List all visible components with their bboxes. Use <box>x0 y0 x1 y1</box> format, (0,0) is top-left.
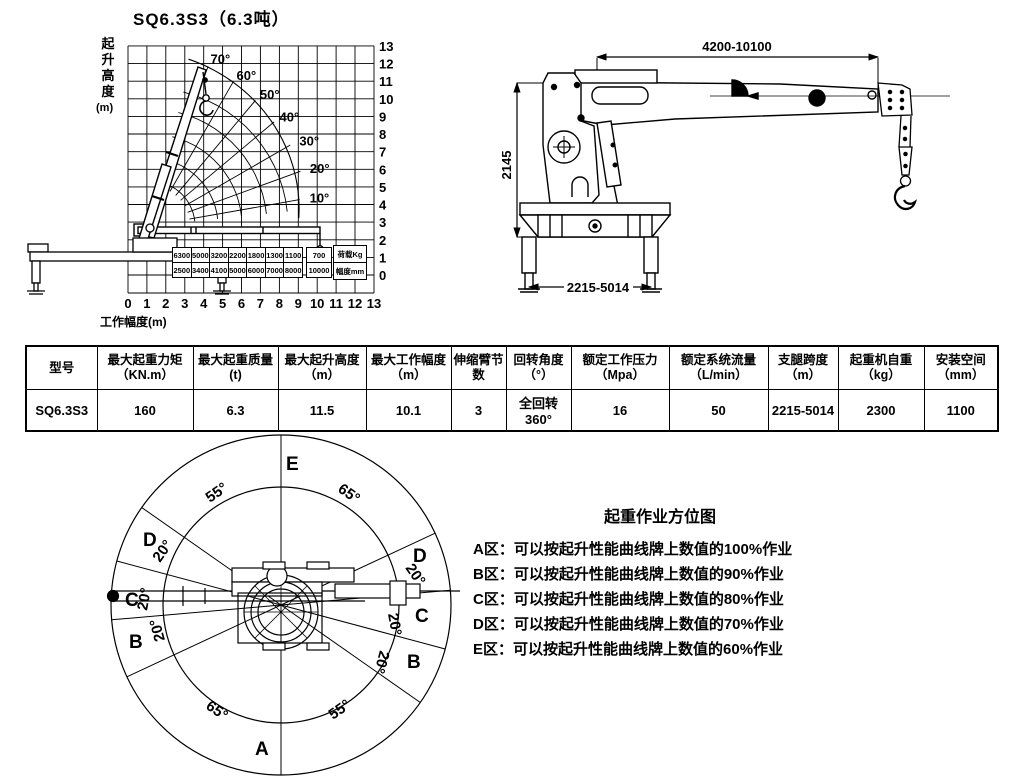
load-height-chart: 01234567891011121301234567891011121310°2… <box>15 0 415 340</box>
x-axis-label: 工作幅度(m) <box>100 314 167 329</box>
radius-cell: 6000 <box>247 263 266 278</box>
load-row-label: 荷载Kg <box>334 246 367 263</box>
dim-span-text: 2215-5014 <box>567 280 630 295</box>
radius-cell: 2500 <box>173 263 192 278</box>
sector-angle-20-right-b: 20° <box>370 649 392 675</box>
raised-boom-drawing <box>136 67 213 248</box>
base-and-outriggers <box>518 203 670 292</box>
dim-outrigger-span: 2215-5014 <box>529 280 651 295</box>
boom-angle-label: 30° <box>299 134 319 149</box>
load-cell: 700 <box>307 248 332 263</box>
spec-header-cell: 支腿跨度（m） <box>768 346 838 390</box>
spec-header-row: 型号 最大起重力矩（KN.m） 最大起重质量(t) 最大起升高度（m） 最大工作… <box>26 346 998 390</box>
capacity-table-labels: 荷载Kg 幅度mm <box>333 245 367 280</box>
sector-angle-20-left-b: 20° <box>147 617 169 643</box>
x-tick-label: 1 <box>143 296 150 311</box>
radius-cell: 4100 <box>210 263 229 278</box>
load-cell: 1300 <box>265 248 284 263</box>
y-tick-label: 2 <box>379 233 386 248</box>
crane-datasheet-page: SQ6.3S3（6.3吨） 起升高度 (m) 01234567891011121… <box>0 0 1018 784</box>
spec-table: 型号 最大起重力矩（KN.m） 最大起重质量(t) 最大起升高度（m） 最大工作… <box>25 345 999 432</box>
x-tick-label: 12 <box>348 296 362 311</box>
spec-header-cell: 起重机自重（kg） <box>838 346 924 390</box>
load-cell: 1100 <box>284 248 303 263</box>
crane-side-view: 4200-10100 2145 <box>480 25 1018 330</box>
spec-header-cell: 最大起重质量(t) <box>193 346 278 390</box>
zone-legend-item: B区：可以按起升性能曲线牌上数值的90%作业 <box>445 562 875 587</box>
x-tick-label: 9 <box>295 296 302 311</box>
sector-angle-bottom-left: 65° <box>203 697 231 724</box>
radius-cell: 3400 <box>191 263 210 278</box>
spec-header-cell: 额定系统流量（L/min） <box>669 346 768 390</box>
spec-header-cell: 最大起重力矩（KN.m） <box>97 346 193 390</box>
x-tick-label: 10 <box>310 296 324 311</box>
boom-angle-label: 60° <box>237 68 257 83</box>
spec-value-cell: 50 <box>669 390 768 432</box>
load-cell: 5000 <box>191 248 210 263</box>
y-tick-label: 0 <box>379 268 386 283</box>
spec-value-cell: 3 <box>451 390 506 432</box>
zone-legend-item: A区：可以按起升性能曲线牌上数值的100%作业 <box>445 537 875 562</box>
sector-angle-20-left-c: 20° <box>134 586 155 611</box>
radius-cell: 7000 <box>265 263 284 278</box>
zone-legend-item: C区：可以按起升性能曲线牌上数值的80%作业 <box>445 587 875 612</box>
zone-legend-title: 起重作业方位图 <box>445 505 875 531</box>
spec-value-cell: 2300 <box>838 390 924 432</box>
boom-angle-label: 10° <box>310 190 330 205</box>
dim-height-text: 2145 <box>499 151 514 180</box>
spec-value-row: SQ6.3S3 160 6.3 11.5 10.1 3 全回转360° 16 5… <box>26 390 998 432</box>
spec-value-cell: 11.5 <box>278 390 366 432</box>
y-tick-label: 9 <box>379 109 386 124</box>
boom-angle-label: 40° <box>280 109 300 124</box>
zone-legend-item: E区：可以按起升性能曲线牌上数值的60%作业 <box>445 637 875 662</box>
y-tick-label: 10 <box>379 92 393 107</box>
zone-legend-item: D区：可以按起升性能曲线牌上数值的70%作业 <box>445 612 875 637</box>
capacity-table: 6300 5000 3200 2200 1800 1300 1100 2500 … <box>172 247 303 278</box>
radius-row-label: 幅度mm <box>334 263 367 280</box>
x-tick-label: 0 <box>124 296 131 311</box>
boom-angle-line <box>189 200 299 220</box>
zone-label-a: A <box>255 739 269 760</box>
zone-label-b-left: B <box>129 632 143 653</box>
boom-angle-label: 70° <box>211 52 231 67</box>
spec-header-cell: 伸缩臂节数 <box>451 346 506 390</box>
spec-header-cell: 型号 <box>26 346 97 390</box>
y-tick-label: 3 <box>379 215 386 230</box>
spec-value-cell: 全回转360° <box>506 390 571 432</box>
zone-legend: 起重作业方位图 A区：可以按起升性能曲线牌上数值的100%作业 B区：可以按起升… <box>445 505 875 662</box>
radius-cell: 5000 <box>228 263 247 278</box>
load-cell: 6300 <box>173 248 192 263</box>
y-tick-label: 8 <box>379 127 386 142</box>
spec-header-cell: 额定工作压力（Mpa） <box>571 346 669 390</box>
y-tick-label: 5 <box>379 180 386 195</box>
load-cell: 1800 <box>247 248 266 263</box>
capacity-table-extension: 700 10000 <box>306 247 332 278</box>
spec-header-cell: 最大工作幅度（m） <box>366 346 451 390</box>
y-tick-label: 11 <box>379 74 393 89</box>
y-tick-label: 13 <box>379 39 393 54</box>
x-tick-label: 11 <box>329 296 343 311</box>
x-tick-label: 4 <box>200 296 208 311</box>
x-tick-label: 6 <box>238 296 245 311</box>
y-tick-label: 12 <box>379 57 393 72</box>
spec-header-cell: 最大起升高度（m） <box>278 346 366 390</box>
boom-angle-label: 50° <box>260 87 280 102</box>
spec-header-cell: 安装空间（mm） <box>924 346 998 390</box>
boom-angle-label: 20° <box>310 161 330 176</box>
radius-cell: 8000 <box>284 263 303 278</box>
radius-cell: 10000 <box>307 263 332 278</box>
zone-label-b-right: B <box>407 652 421 673</box>
x-tick-label: 8 <box>276 296 283 311</box>
load-cell: 2200 <box>228 248 247 263</box>
load-cell: 3200 <box>210 248 229 263</box>
y-tick-label: 7 <box>379 145 386 160</box>
sector-angle-top-right: 65° <box>335 480 363 507</box>
sector-angle-top-left: 55° <box>203 479 231 506</box>
work-zone-diagram: E A D C B D C B 55° 65° 65° 55° 20° 20° … <box>85 428 485 784</box>
spec-value-cell: 2215-5014 <box>768 390 838 432</box>
capacity-load-row: 6300 5000 3200 2200 1800 1300 1100 <box>173 248 303 263</box>
y-tick-label: 6 <box>379 162 386 177</box>
spec-value-cell: 6.3 <box>193 390 278 432</box>
y-tick-label: 4 <box>379 198 387 213</box>
spec-value-cell: 160 <box>97 390 193 432</box>
x-tick-label: 2 <box>162 296 169 311</box>
x-tick-label: 13 <box>367 296 381 311</box>
spec-value-cell: 1100 <box>924 390 998 432</box>
x-tick-label: 7 <box>257 296 264 311</box>
x-tick-label: 3 <box>181 296 188 311</box>
capacity-radius-row: 2500 3400 4100 5000 6000 7000 8000 <box>173 263 303 278</box>
spec-value-cell: 16 <box>571 390 669 432</box>
dim-boom-length-text: 4200-10100 <box>702 39 771 54</box>
spec-header-cell: 回转角度（°） <box>506 346 571 390</box>
zone-label-e: E <box>286 454 299 475</box>
spec-value-cell: SQ6.3S3 <box>26 390 97 432</box>
spec-value-cell: 10.1 <box>366 390 451 432</box>
zone-label-c-right: C <box>415 606 429 627</box>
y-tick-label: 1 <box>379 250 386 265</box>
x-tick-label: 5 <box>219 296 226 311</box>
hook-assembly <box>878 83 915 209</box>
